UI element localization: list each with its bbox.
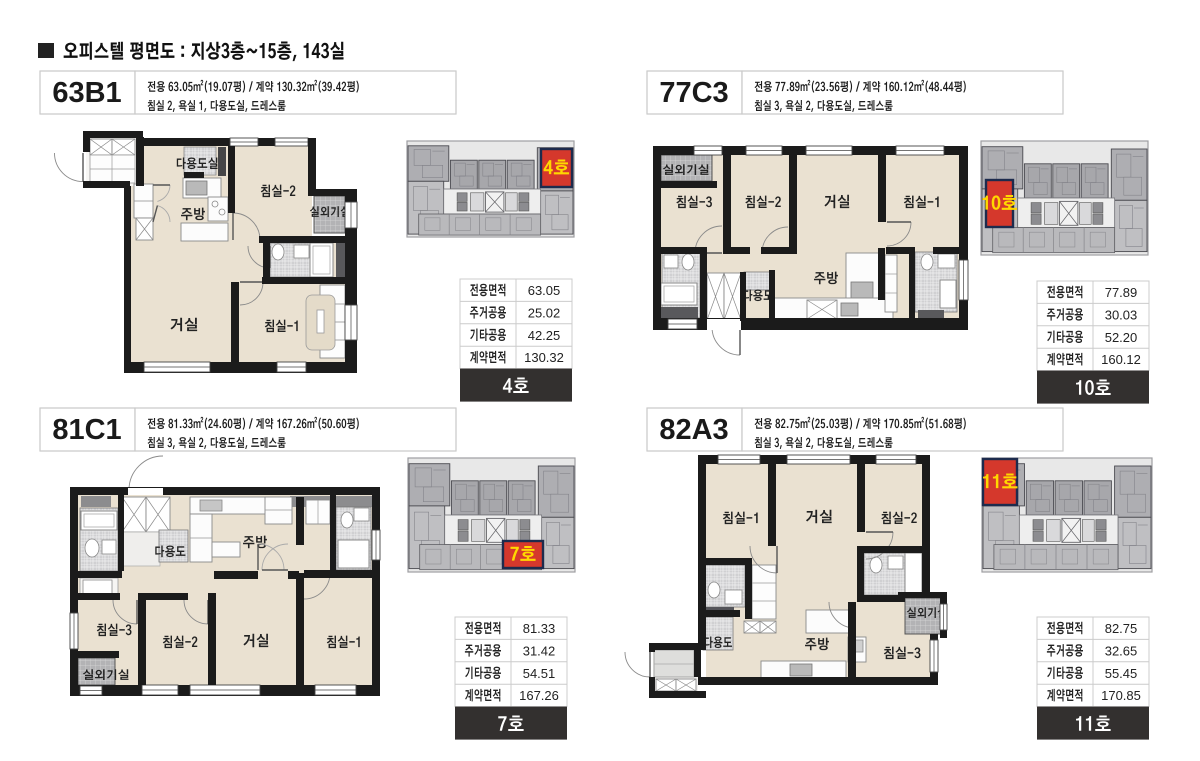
svg-text:77C3: 77C3 xyxy=(659,77,728,109)
svg-text:130.32: 130.32 xyxy=(524,350,564,365)
svg-text:63.05: 63.05 xyxy=(528,283,561,298)
svg-text:31.42: 31.42 xyxy=(523,643,556,658)
svg-text:77.89: 77.89 xyxy=(1105,285,1138,300)
svg-text:170.85: 170.85 xyxy=(1101,688,1141,703)
svg-text:25.02: 25.02 xyxy=(528,305,561,320)
svg-text:82.75: 82.75 xyxy=(1105,621,1138,636)
svg-text:42.25: 42.25 xyxy=(528,328,561,343)
svg-text:54.51: 54.51 xyxy=(523,666,556,681)
svg-text:167.26: 167.26 xyxy=(519,688,559,703)
svg-text:82A3: 82A3 xyxy=(659,414,728,446)
svg-text:160.12: 160.12 xyxy=(1101,352,1141,367)
svg-text:55.45: 55.45 xyxy=(1105,666,1138,681)
svg-text:32.65: 32.65 xyxy=(1105,643,1138,658)
svg-text:81C1: 81C1 xyxy=(52,414,121,446)
svg-text:81.33: 81.33 xyxy=(523,621,556,636)
svg-text:30.03: 30.03 xyxy=(1105,307,1138,322)
svg-text:52.20: 52.20 xyxy=(1105,330,1138,345)
svg-text:63B1: 63B1 xyxy=(52,77,121,109)
